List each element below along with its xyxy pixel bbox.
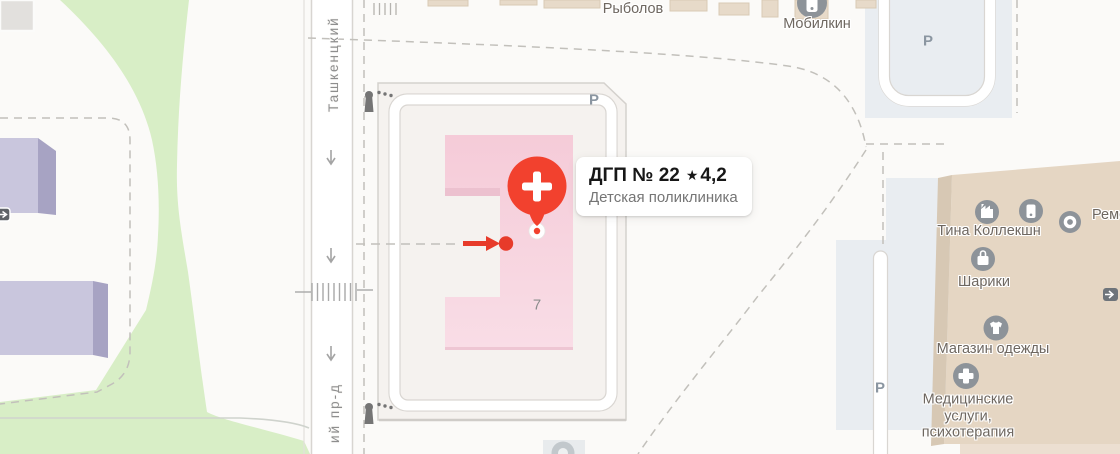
parking-label[interactable]: Р [589, 92, 599, 109]
place-card[interactable]: ДГП № 22★4,2 Детская поликлиника [576, 157, 752, 216]
building-residential-1 [0, 138, 56, 215]
green-area [0, 0, 310, 454]
phone-icon[interactable] [1019, 199, 1043, 223]
place-rating: 4,2 [700, 165, 726, 186]
clipped-poi-icon [543, 440, 585, 454]
factory-icon[interactable] [975, 200, 999, 224]
map-canvas[interactable]: Рыболов Мобилкин Тина Коллекшн Шарики Ма… [0, 0, 1120, 454]
building-number: 7 [533, 297, 541, 314]
poi-label-shariki[interactable]: Шарики [958, 274, 1010, 290]
fence-hatch-top [374, 3, 396, 15]
generic-org-icon[interactable] [1059, 211, 1081, 233]
parking-label[interactable]: Р [875, 380, 885, 397]
poi-label-tina-kollekshn[interactable]: Тина Коллекшн [937, 223, 1041, 239]
place-title: ДГП № 22 [589, 165, 680, 186]
medical-cross-icon[interactable] [953, 363, 979, 389]
shopping-bag-icon[interactable] [971, 247, 995, 271]
poi-label-med-uslugi[interactable]: Медицинские услуги, психотерапия [909, 391, 1027, 441]
building-gray-topleft [0, 0, 34, 31]
one-way-sign-icon [0, 208, 10, 221]
building-residential-2 [0, 281, 108, 358]
poi-label-rybolov[interactable]: Рыболов [603, 1, 664, 17]
tshirt-icon[interactable] [984, 316, 1009, 341]
street-name-label-bottom: ий пр-д [327, 383, 342, 443]
rating-star-icon: ★ [680, 167, 701, 183]
poi-label-magazin-odezhdy[interactable]: Магазин одежды [937, 341, 1050, 357]
street-name-label-top: Ташкенцкий [326, 16, 341, 112]
place-card-title-row: ДГП № 22★4,2 [589, 165, 738, 187]
fence-crossing-road [295, 283, 373, 301]
parking-label[interactable]: Р [923, 33, 933, 50]
place-subtitle: Детская поликлиника [589, 189, 738, 207]
poi-label-mobilkin[interactable]: Мобилкин [783, 16, 851, 32]
parking-strip-right [874, 251, 888, 454]
poi-label-remont-clipped[interactable]: Ремо [1092, 207, 1120, 223]
entrance-arrow-icon [1103, 288, 1118, 301]
